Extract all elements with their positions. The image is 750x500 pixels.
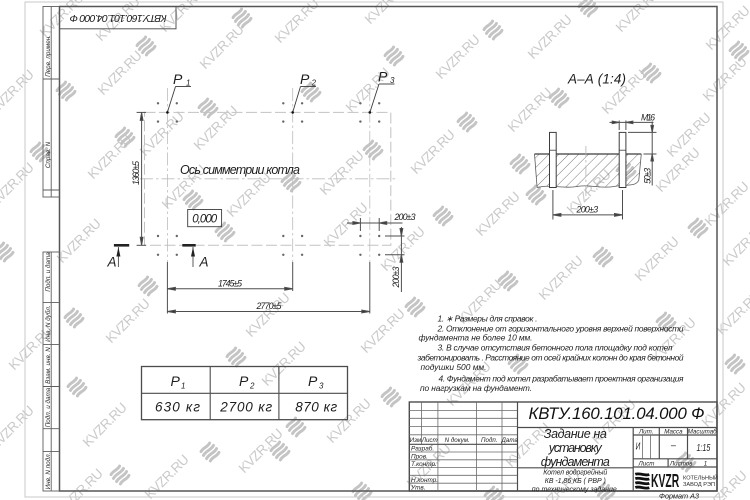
svg-text:200±3: 200±3	[391, 266, 401, 288]
svg-text:Лит.: Лит.	[638, 428, 654, 435]
svg-text:Масса: Масса	[664, 428, 683, 435]
svg-text:0,000: 0,000	[192, 213, 218, 225]
svg-text:Инв. N дубл.: Инв. N дубл.	[44, 305, 52, 341]
svg-text:P: P	[300, 71, 310, 87]
svg-text:P: P	[378, 69, 388, 85]
svg-text:KVZR.RU: KVZR.RU	[54, 216, 104, 266]
svg-text:по техническому задание: по техническому задание	[532, 486, 617, 494]
svg-text:KVZR.RU: KVZR.RU	[699, 380, 749, 430]
svg-text:KVZR.RU: KVZR.RU	[714, 288, 750, 338]
svg-text:KVZR.RU: KVZR.RU	[433, 32, 483, 82]
svg-text:3: 3	[319, 382, 324, 391]
svg-text:Инв. N подл.: Инв. N подл.	[44, 453, 52, 490]
svg-text:P: P	[239, 373, 249, 389]
svg-text:KVZR.RU: KVZR.RU	[197, 22, 247, 72]
svg-text:N докум.: N докум.	[445, 437, 470, 444]
svg-text:2700 кг: 2700 кг	[219, 400, 272, 415]
svg-text:KVZR.RU: KVZR.RU	[80, 400, 130, 450]
svg-text:P: P	[173, 71, 183, 87]
svg-text:Дата: Дата	[501, 437, 519, 444]
svg-text:KVZR.RU: KVZR.RU	[0, 403, 37, 453]
svg-text:Листов: Листов	[669, 460, 693, 467]
svg-text:Подп. и дата: Подп. и дата	[44, 387, 52, 427]
svg-text:Взам. инв. N: Взам. инв. N	[45, 347, 52, 384]
svg-text:1360±5: 1360±5	[131, 161, 141, 185]
svg-text:А: А	[199, 255, 209, 270]
svg-text:50±3: 50±3	[643, 168, 653, 184]
svg-text:Лист: Лист	[421, 437, 438, 444]
svg-text:Формат А3: Формат А3	[659, 491, 700, 500]
svg-text:Изм: Изм	[410, 437, 422, 444]
svg-text:А: А	[107, 255, 117, 270]
svg-text:KVZR.RU: KVZR.RU	[408, 127, 458, 177]
svg-text:ЗАВОД РЭП: ЗАВОД РЭП	[683, 482, 715, 488]
svg-text:фундамента: фундамента	[541, 455, 610, 469]
svg-text:630 кг: 630 кг	[155, 400, 200, 415]
svg-text:Подп. и дата: Подп. и дата	[44, 252, 52, 292]
svg-text:подушки 500 мм.: подушки 500 мм.	[421, 362, 487, 372]
svg-text:Котел водогрейный: Котел водогрейный	[543, 469, 607, 477]
svg-text:А–А (1:4): А–А (1:4)	[567, 72, 626, 87]
svg-text:KVZR.RU: KVZR.RU	[720, 219, 750, 269]
svg-text:KVZR.RU: KVZR.RU	[103, 296, 153, 346]
svg-text:KVZR.RU: KVZR.RU	[700, 54, 750, 104]
svg-text:Ось симметрии котла: Ось симметрии котла	[180, 163, 300, 177]
svg-text:KVZR.RU: KVZR.RU	[224, 170, 274, 220]
svg-text:М16: М16	[641, 112, 655, 122]
svg-text:Подп.: Подп.	[481, 437, 497, 444]
svg-text:KVZR.RU: KVZR.RU	[362, 0, 412, 27]
svg-text:KVZR.RU: KVZR.RU	[243, 290, 293, 340]
svg-text:KVZR.RU: KVZR.RU	[317, 148, 367, 198]
svg-text:Перв. примен.: Перв. примен.	[45, 35, 52, 77]
svg-text:Н.контр.: Н.контр.	[411, 477, 438, 484]
svg-text:870 кг: 870 кг	[295, 400, 337, 415]
svg-text:установку: установку	[548, 441, 603, 455]
svg-text:1: 1	[181, 382, 185, 391]
svg-text:КОТЕЛЬНЫЙ: КОТЕЛЬНЫЙ	[683, 474, 718, 482]
svg-text:KVZR.RU: KVZR.RU	[56, 466, 106, 500]
svg-text:по нагрузкам на фундамент.: по нагрузкам на фундамент.	[420, 383, 532, 393]
svg-text:Пров.: Пров.	[411, 454, 428, 461]
svg-text:Масштаб: Масштаб	[688, 428, 717, 435]
svg-text:200±3: 200±3	[576, 204, 599, 214]
svg-text:Лист: Лист	[638, 460, 655, 467]
svg-text:КВ -1,86 КБ ( РВР ): КВ -1,86 КБ ( РВР )	[545, 478, 606, 485]
svg-text:KVZR.RU: KVZR.RU	[702, 179, 750, 229]
svg-text:3. В случае отсутствия бетонн: 3. В случае отсутствия бетонного пола пл…	[438, 343, 673, 353]
svg-text:KVZR.RU: KVZR.RU	[259, 339, 309, 389]
svg-text:КВТУ.160.101.04.000 Ф: КВТУ.160.101.04.000 Ф	[529, 404, 705, 423]
svg-text:KVZR.RU: KVZR.RU	[0, 160, 37, 210]
svg-text:Справ. N: Справ. N	[45, 141, 52, 168]
svg-text:KVZR.RU: KVZR.RU	[632, 234, 682, 284]
svg-text:KVZR.RU: KVZR.RU	[505, 85, 555, 135]
svg-text:KVZR.RU: KVZR.RU	[95, 48, 145, 98]
svg-text:KVZR.RU: KVZR.RU	[142, 452, 192, 500]
svg-text:KVZR.RU: KVZR.RU	[0, 67, 37, 117]
svg-text:4. Фундамент под котел разраб: 4. Фундамент под котел разрабатывает про…	[439, 373, 685, 383]
svg-text:KVZR.RU: KVZR.RU	[525, 12, 575, 62]
svg-text:P: P	[308, 373, 318, 389]
svg-text:KVZR.RU: KVZR.RU	[536, 253, 586, 303]
svg-text:KVZR.RU: KVZR.RU	[613, 0, 663, 35]
svg-text:2: 2	[249, 382, 255, 391]
svg-text:1745±5: 1745±5	[218, 278, 242, 288]
svg-text:KVZR: KVZR	[651, 471, 679, 492]
svg-text:Т.контр.: Т.контр.	[411, 461, 437, 468]
svg-text:1. ∗ Размеры для справок .: 1. ∗ Размеры для справок .	[438, 313, 538, 323]
svg-text:1: 1	[704, 460, 707, 467]
svg-text:KVZR.RU: KVZR.RU	[321, 200, 371, 250]
svg-text:забетонировать . Расстояние о: забетонировать . Расстояние от осей край…	[417, 352, 684, 362]
svg-text:KVZR.RU: KVZR.RU	[358, 306, 408, 356]
svg-text:КВТУ.160.101.04.000 Ф: КВТУ.160.101.04.000 Ф	[70, 12, 167, 24]
svg-text:P: P	[171, 373, 181, 389]
svg-text:Утв.: Утв.	[410, 485, 426, 492]
svg-text:2770±5: 2770±5	[256, 301, 282, 311]
svg-text:KVZR.RU: KVZR.RU	[378, 224, 428, 274]
svg-text:KVZR.RU: KVZR.RU	[473, 189, 523, 239]
svg-text:1:15: 1:15	[696, 442, 711, 454]
svg-text:Разраб.: Разраб.	[411, 445, 434, 453]
svg-text:Задание на: Задание на	[544, 427, 607, 441]
svg-text:И: И	[636, 440, 641, 452]
svg-text:–: –	[670, 440, 677, 450]
svg-text:фундамента не более 10 мм.: фундамента не более 10 мм.	[419, 333, 533, 343]
svg-text:200±3: 200±3	[394, 212, 416, 222]
